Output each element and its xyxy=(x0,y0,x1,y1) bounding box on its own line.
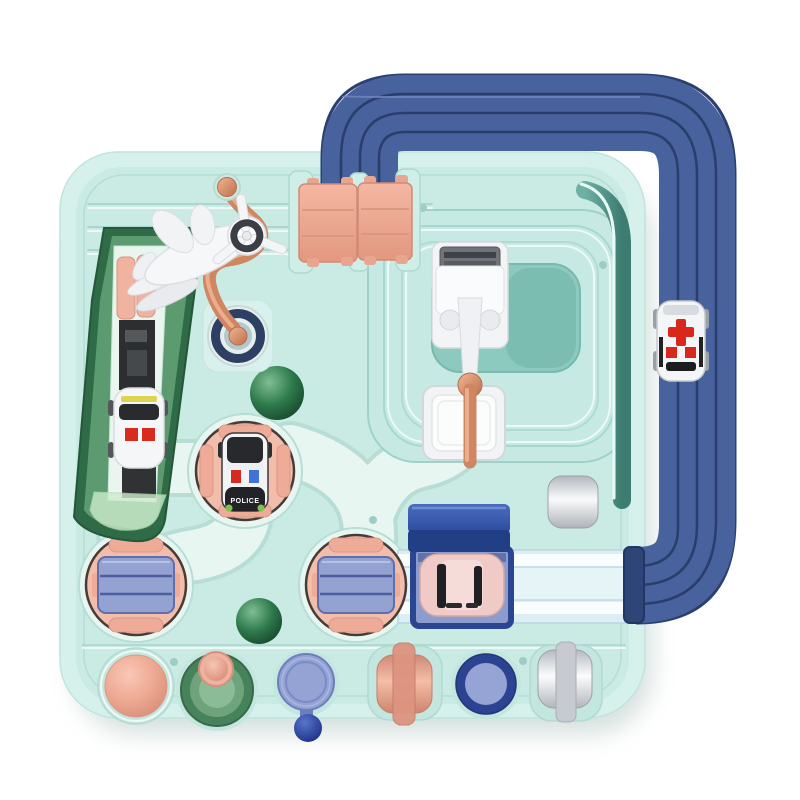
silver-roller xyxy=(548,476,598,528)
navy-track-end-cap xyxy=(624,547,644,623)
car-bay-canopy xyxy=(408,504,511,626)
pink-car xyxy=(420,554,504,616)
launcher-turntable-right xyxy=(306,535,406,635)
pink-flip-bridge xyxy=(289,169,420,273)
pink-dome-button xyxy=(105,655,167,717)
police-car: POLICE xyxy=(218,433,272,512)
green-ball-upper xyxy=(250,366,304,420)
green-ball-lower xyxy=(236,598,282,644)
green-funnel-button xyxy=(181,652,253,726)
white-car xyxy=(108,388,168,468)
toy-product-photo: POLICE xyxy=(0,0,800,800)
ambulance-car xyxy=(653,301,709,381)
pull-knob xyxy=(294,714,322,742)
blue-ring-button xyxy=(456,654,516,714)
launcher-turntable-left xyxy=(86,535,186,635)
police-car-label: POLICE xyxy=(230,498,259,505)
